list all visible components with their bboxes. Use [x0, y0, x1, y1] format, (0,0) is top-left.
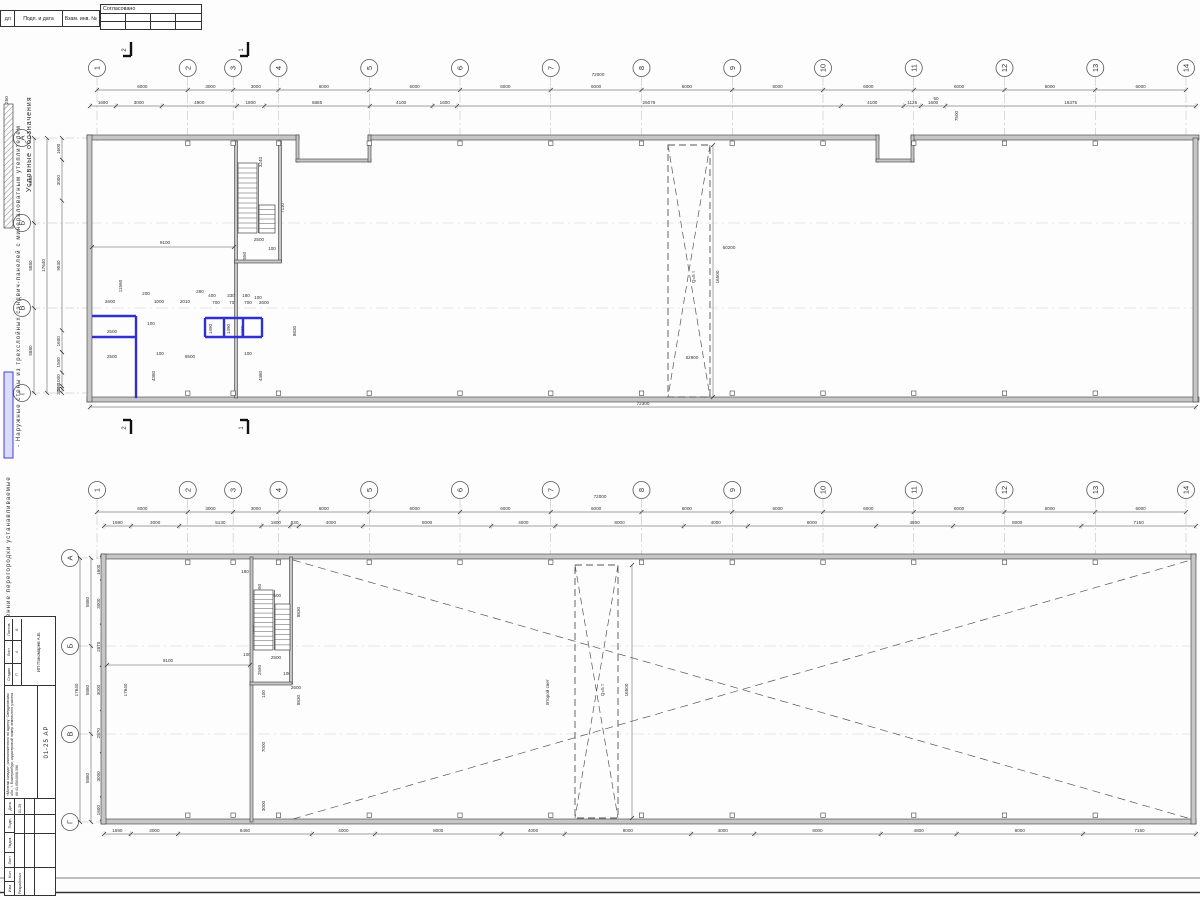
dim-label: 530 — [291, 520, 299, 525]
column-marker — [730, 560, 734, 564]
column-marker — [458, 141, 462, 145]
staircase — [254, 590, 273, 650]
annotation: 1490 — [226, 323, 231, 334]
dim-label: 1800 — [245, 100, 256, 105]
annotation: 2600 — [105, 299, 116, 304]
annotation: 3000 — [261, 800, 266, 811]
dim-label: 2870 — [96, 641, 101, 652]
annotation: 2600 — [259, 300, 270, 305]
column-marker — [186, 141, 190, 145]
column-marker — [1002, 560, 1006, 564]
annotation: 180 — [241, 569, 249, 574]
annotation: 50 — [933, 96, 939, 101]
grid-axis-label: 7 — [546, 488, 555, 492]
dim-label: 6000 — [500, 84, 511, 89]
annotation: 60200 — [723, 245, 736, 250]
legend-title: Условные обозначения — [26, 96, 33, 192]
tb-col-doc: №док — [5, 832, 14, 852]
wall — [368, 135, 371, 162]
annotation: 100 — [268, 246, 276, 251]
dim-label: 8000 — [807, 520, 818, 525]
annotation: 17640 — [123, 683, 128, 696]
approved-box: Согласовано — [100, 4, 202, 30]
column-marker — [639, 391, 643, 395]
grid-axis-label: 10 — [819, 486, 828, 494]
column-marker — [186, 813, 190, 817]
dim-label: 3000 — [251, 84, 262, 89]
grid-axis-label: В — [66, 731, 75, 736]
annotation: 200 — [142, 291, 150, 296]
annotation: Q=5 т — [600, 683, 605, 696]
dim-label: 8000 — [623, 828, 634, 833]
stage-label: Стадия — [5, 663, 13, 685]
annotation: 72000 — [594, 494, 607, 499]
wall — [1191, 554, 1196, 824]
wall — [101, 554, 1196, 559]
sheets-value: 6 — [13, 619, 21, 640]
column-marker — [730, 813, 734, 817]
column-marker — [1002, 813, 1006, 817]
dim-label: 1690 — [98, 100, 109, 105]
column-marker — [549, 560, 553, 564]
wall — [235, 260, 282, 263]
dim-label: 1690 — [112, 520, 123, 525]
dim-label: 6000 — [863, 506, 874, 511]
company-name: ИП Пономарев А.В. — [22, 619, 55, 685]
dim-label: 4000 — [326, 520, 337, 525]
header-cell-sign-date: Подп. и дата — [14, 10, 61, 27]
wall — [296, 159, 371, 162]
column-marker — [458, 813, 462, 817]
dim-label: 4000 — [711, 520, 722, 525]
annotation: 2600 — [291, 685, 302, 690]
wall — [235, 141, 238, 398]
tb-col-izm: Изм — [5, 881, 14, 895]
annotation: Q=5 т — [691, 270, 696, 283]
column-marker — [821, 391, 825, 395]
dim-label: 3000 — [150, 520, 161, 525]
annotation: 9100 — [163, 658, 174, 663]
grid-axis-label: 13 — [1091, 64, 1100, 72]
annotation: 330 — [227, 293, 235, 298]
tb-col-date: Дата — [5, 799, 14, 814]
dim-label: 4000 — [718, 828, 729, 833]
dim-label: 25075 — [643, 100, 656, 105]
grid-axis-label: 3 — [229, 66, 238, 70]
column-marker — [367, 560, 371, 564]
annotation: 8830 — [296, 694, 301, 705]
column-marker — [231, 391, 235, 395]
dim-label: 7150 — [1134, 520, 1145, 525]
section-mark-label: 2 — [122, 48, 128, 52]
dim-label: 6000 — [1136, 84, 1147, 89]
dim-label: 3000 — [96, 771, 101, 782]
tb-col-kol: Кол — [5, 867, 14, 882]
dim-label: 17640 — [74, 683, 79, 696]
annotation: 4380 — [151, 370, 156, 381]
annotation: 100 — [156, 351, 164, 356]
grid-axis-label: 9 — [728, 66, 737, 70]
dim-label: 6000 — [863, 84, 874, 89]
grid-axis-label: 10 — [819, 64, 828, 72]
dim-label: 1600 — [56, 336, 61, 347]
grid-axis-label: 14 — [1182, 64, 1191, 72]
column-marker — [1093, 560, 1097, 564]
wall — [911, 135, 1199, 140]
header-strip: дл Подп. и дата Взам. инв. № — [0, 10, 100, 27]
grid-axis-label: 1 — [93, 66, 102, 70]
staircase — [275, 604, 290, 650]
dim-label: 4100 — [867, 100, 878, 105]
dim-label: 2870 — [96, 728, 101, 739]
approved-label: Согласовано — [101, 5, 201, 13]
column-marker — [276, 813, 280, 817]
section-mark-label: 1 — [239, 426, 245, 430]
dim-label: 6885 — [312, 100, 323, 105]
dim-label: 3000 — [134, 100, 145, 105]
tb-developed-sign — [15, 814, 24, 833]
sheet-label: Лист — [5, 640, 13, 662]
floor-plans-svg: 1234567891011121314600030003000600060006… — [0, 0, 1200, 900]
dim-label: 6000 — [137, 84, 148, 89]
wall — [87, 397, 1199, 402]
section-mark-label: 2 — [122, 426, 128, 430]
dim-label: 5880 — [85, 596, 90, 607]
annotation: 62800 — [686, 355, 699, 360]
dim-label: 5880 — [85, 772, 90, 783]
column-marker — [367, 391, 371, 395]
grid-axis-label: 6 — [456, 66, 465, 70]
dim-label: 6000 — [319, 506, 330, 511]
dim-label: 6000 — [773, 506, 784, 511]
column-marker — [276, 141, 280, 145]
grid-axis-label: 5 — [365, 488, 374, 492]
dim-label: 5880 — [85, 684, 90, 695]
dim-label: 6000 — [1045, 84, 1056, 89]
wall — [279, 141, 282, 262]
title-block-stage: Стадия Лист Листов П 4 6 ИП Пономарев А.… — [5, 619, 55, 685]
annotation: 2500 — [107, 354, 118, 359]
annotation: 8830 — [296, 606, 301, 617]
column-marker — [912, 391, 916, 395]
grid-axis-label: 13 — [1091, 486, 1100, 494]
annotation: 16500 — [624, 683, 629, 696]
grid-axis-label: 8 — [637, 66, 646, 70]
dim-label: 6000 — [591, 84, 602, 89]
dim-label: 8000 — [422, 520, 433, 525]
dim-label: 1125 — [907, 100, 917, 105]
dim-label: 6000 — [682, 84, 693, 89]
grid-axis-label: 9 — [728, 488, 737, 492]
dim-label: 6000 — [954, 84, 965, 89]
sheets-label: Листов — [5, 619, 13, 640]
column-marker — [1093, 141, 1097, 145]
grid-axis-label: 2 — [183, 488, 192, 492]
grid-axis-label: Б — [66, 643, 75, 648]
annotation: 2500 — [107, 329, 118, 334]
column-marker — [458, 560, 462, 564]
dim-label: 1600 — [440, 100, 451, 105]
annotation: 1000 — [154, 299, 165, 304]
column-marker — [912, 813, 916, 817]
grid-axis-label: 12 — [1000, 486, 1009, 494]
annotation: 100 — [261, 690, 266, 698]
dim-label: 6000 — [591, 506, 602, 511]
dim-label: 6000 — [319, 84, 330, 89]
wall — [876, 135, 879, 162]
legend-item-outer-walls: - Наружные стены из трехслойных сэндвич-… — [16, 125, 22, 447]
dim-label: 6000 — [1136, 506, 1147, 511]
dim-label: 4800 — [914, 828, 925, 833]
dim-label: 6000 — [500, 506, 511, 511]
annotation: 16500 — [715, 270, 720, 283]
dim-label: 4000 — [528, 828, 539, 833]
wall — [101, 819, 1196, 824]
dim-label: 7150 — [1134, 828, 1145, 833]
annotation: 1490 — [208, 323, 213, 334]
grid-axis-label: 3 — [229, 488, 238, 492]
annotation: 400 — [208, 293, 216, 298]
wall — [296, 135, 299, 162]
grid-axis-label: 14 — [1182, 486, 1191, 494]
dim-label: 1800 — [271, 520, 282, 525]
approved-grid — [101, 13, 201, 30]
column-marker — [276, 391, 280, 395]
annotation: 7500 — [954, 110, 959, 121]
annotation: 2500 — [271, 655, 282, 660]
dim-label: 6000 — [1045, 506, 1056, 511]
annotation: 700 — [212, 300, 220, 305]
dim-label: 17640 — [41, 259, 46, 272]
grid-axis-label: 8 — [637, 488, 646, 492]
column-marker — [186, 391, 190, 395]
dim-label: 3000 — [56, 175, 61, 186]
title-block-revision-table: Изм Кол Лист №док Подп. Дата Разработал … — [5, 798, 55, 895]
dim-label: 8460 — [240, 828, 251, 833]
dim-label: 8000 — [614, 520, 625, 525]
column-marker — [549, 141, 553, 145]
dim-label: 6000 — [410, 506, 421, 511]
wall — [250, 557, 253, 822]
wall — [876, 159, 914, 162]
column-marker — [367, 813, 371, 817]
column-marker — [276, 560, 280, 564]
legend-swatch-dim: 250 — [4, 96, 9, 104]
dim-label: 4000 — [338, 828, 349, 833]
annotation: 11560 — [118, 279, 123, 292]
header-cell-vzam: Взам. инв. № — [62, 10, 100, 27]
wall — [1193, 138, 1198, 402]
annotation: Второй свет — [544, 678, 550, 705]
title-block: Изм Кол Лист №док Подп. Дата Разработал … — [4, 616, 56, 896]
drawing-sheet: { "sheet": { "header": {"col1":"дл","col… — [0, 0, 1200, 900]
dim-label: 8000 — [812, 828, 823, 833]
grid-axis-label: 4 — [274, 488, 283, 492]
grid-axis-label: 1 — [93, 488, 102, 492]
column-marker — [821, 141, 825, 145]
annotation: 180 — [242, 293, 250, 298]
dim-label: 5880 — [28, 260, 33, 271]
column-marker — [1093, 813, 1097, 817]
dim-label: 6000 — [137, 506, 148, 511]
dim-label: 8000 — [1015, 828, 1026, 833]
annotation: 72000 — [592, 72, 605, 77]
wall — [87, 135, 299, 140]
document-number: 01-25 АР — [38, 686, 55, 798]
wall — [911, 135, 914, 162]
wall — [87, 135, 92, 402]
column-marker — [1002, 391, 1006, 395]
dim-label: 1500 — [56, 357, 61, 368]
sheet-value: 4 — [13, 640, 21, 662]
annotation: 100 — [244, 351, 252, 356]
grid-axis-label: 5 — [365, 66, 374, 70]
column-marker — [231, 141, 235, 145]
annotation: 2550 — [257, 664, 262, 675]
dim-label: 6000 — [773, 84, 784, 89]
tb-col-sign: Подп. — [5, 814, 14, 832]
grid-axis-label: 11 — [909, 486, 918, 494]
column-marker — [1002, 141, 1006, 145]
dim-label: 3000 — [205, 84, 216, 89]
annotation: 8830 — [292, 325, 297, 336]
annotation: 100 — [147, 321, 155, 326]
dim-label: 16375 — [1064, 100, 1077, 105]
dim-label: 6000 — [410, 84, 421, 89]
grid-axis-label: 6 — [456, 488, 465, 492]
legend-swatch-partition — [4, 372, 13, 458]
dim-label: 6000 — [682, 506, 693, 511]
tb-developed-date: 01.25 — [15, 799, 24, 814]
column-marker — [231, 560, 235, 564]
column-marker — [458, 391, 462, 395]
column-marker — [367, 141, 371, 145]
annotation: 2500 — [254, 237, 265, 242]
dim-label: 3000 — [96, 684, 101, 695]
grid-axis-label: 12 — [1000, 64, 1009, 72]
column-marker — [639, 141, 643, 145]
column-marker — [549, 391, 553, 395]
annotation: 280 — [196, 289, 204, 294]
grid-axis-label: 2 — [183, 66, 192, 70]
project-description: «Монтаж склада», расположенного по адрес… — [5, 686, 38, 798]
grid-axis-label: А — [66, 555, 75, 560]
tb-developed-label: Разработал — [15, 867, 24, 895]
annotation: 2010 — [180, 299, 191, 304]
dim-label: 4800 — [909, 520, 920, 525]
wall — [368, 135, 879, 140]
dim-label: 5130 — [215, 520, 226, 525]
dim-label: 8000 — [433, 828, 444, 833]
column-marker — [231, 813, 235, 817]
dim-label: 6000 — [954, 506, 965, 511]
wall — [101, 554, 106, 824]
dim-label: 8000 — [1012, 520, 1023, 525]
column-marker — [912, 560, 916, 564]
annotation: 700 — [244, 300, 252, 305]
column-marker — [730, 141, 734, 145]
grid-axis-label: Г — [66, 820, 75, 824]
grid-axis-label: 11 — [909, 64, 918, 72]
dim-label: 1600 — [96, 805, 101, 816]
column-marker — [912, 141, 916, 145]
dim-label: 4900 — [194, 100, 205, 105]
column-marker — [821, 560, 825, 564]
dim-label: 1600 — [96, 564, 101, 575]
annotation: 6500 — [185, 354, 196, 359]
column-marker — [1093, 391, 1097, 395]
tb-col-list: Лист — [5, 852, 14, 867]
dim-label: 1600 — [56, 143, 61, 154]
column-marker — [186, 560, 190, 564]
column-marker — [821, 813, 825, 817]
annotation: 4380 — [258, 370, 263, 381]
dim-label: 4000 — [518, 520, 529, 525]
annotation: 9100 — [160, 240, 171, 245]
column-marker — [639, 813, 643, 817]
dim-label: 300 — [56, 387, 61, 395]
grid-axis-label: 4 — [274, 66, 283, 70]
section-mark-label: 1 — [239, 48, 245, 52]
title-block-description: «Монтаж склада», расположенного по адрес… — [5, 685, 55, 798]
annotation: 7000 — [261, 741, 266, 752]
grid-axis-label: 7 — [546, 66, 555, 70]
dim-label: 3000 — [205, 506, 216, 511]
column-marker — [730, 391, 734, 395]
column-marker — [549, 813, 553, 817]
dim-label: 1690 — [112, 828, 123, 833]
dim-label: 3000 — [96, 598, 101, 609]
dim-label: 3000 — [149, 828, 160, 833]
wall — [250, 682, 292, 685]
stage-value: П — [13, 663, 21, 685]
legend-swatch-outer-wall — [4, 104, 13, 228]
dim-label: 5880 — [28, 345, 33, 356]
dim-label: 9530 — [56, 260, 61, 271]
dim-label: 4100 — [396, 100, 407, 105]
tb-developed-name — [15, 833, 24, 867]
column-marker — [639, 560, 643, 564]
header-cell-inv: дл — [0, 10, 14, 27]
dim-label: 3000 — [251, 506, 262, 511]
